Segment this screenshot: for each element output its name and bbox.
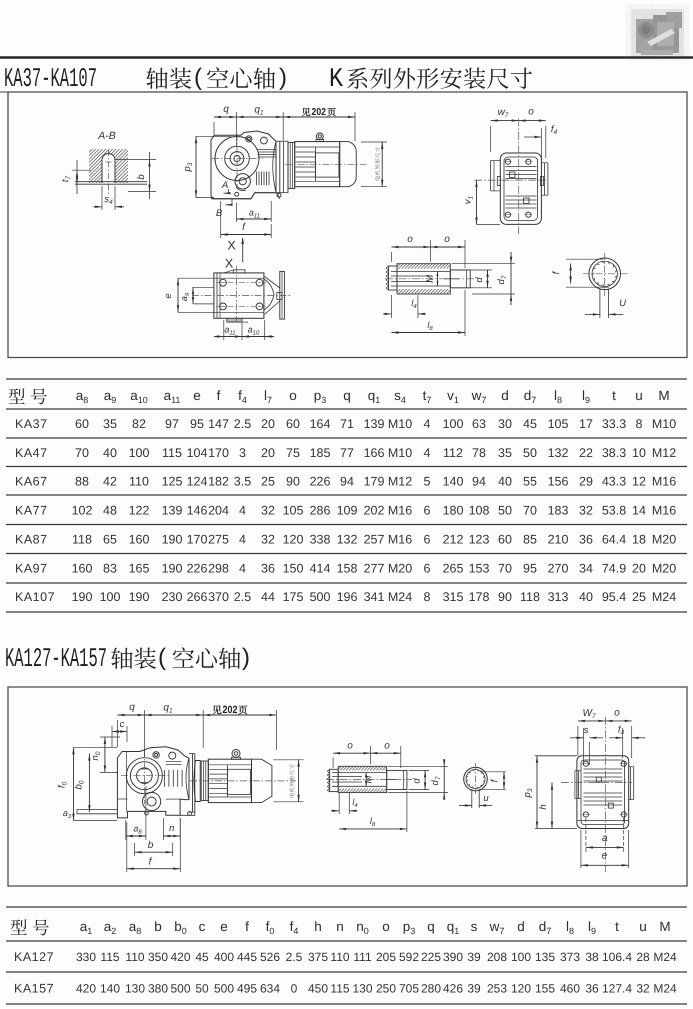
svg-text:88421101251241823.525902269417: 88421101251241823.5259022694179M12514094… xyxy=(75,475,676,489)
svg-text:d: d xyxy=(474,277,485,283)
svg-text:p3: p3 xyxy=(314,388,327,405)
svg-text:t: t xyxy=(615,919,619,934)
svg-text:): ) xyxy=(242,644,250,671)
svg-text:d: d xyxy=(517,919,525,934)
svg-text:f: f xyxy=(245,919,249,934)
svg-text:f4: f4 xyxy=(290,919,299,936)
svg-text:o: o xyxy=(347,741,353,752)
svg-text:n0: n0 xyxy=(356,919,369,936)
svg-text:M: M xyxy=(364,775,375,783)
svg-text:t7: t7 xyxy=(423,388,432,405)
svg-text:q: q xyxy=(223,104,229,115)
svg-text:a2: a2 xyxy=(104,919,117,936)
svg-text:118651601901702754321203381322: 11865160190170275432120338132257M1662121… xyxy=(72,532,676,546)
svg-text:p3: p3 xyxy=(403,919,416,936)
svg-text:KA77: KA77 xyxy=(15,504,48,518)
svg-text:l8: l8 xyxy=(554,388,562,405)
svg-text:a11: a11 xyxy=(224,325,235,337)
svg-text:o: o xyxy=(289,388,297,403)
svg-text:(: ( xyxy=(194,64,202,91)
svg-text:A-B: A-B xyxy=(97,130,116,142)
svg-text:KA87: KA87 xyxy=(15,532,48,546)
svg-text:A: A xyxy=(221,180,228,191)
svg-text:60358297951472.5206016471139M1: 60358297951472.5206016471139M10410063304… xyxy=(75,417,676,431)
svg-text:u: u xyxy=(635,388,643,403)
svg-text:K: K xyxy=(329,65,344,95)
svg-text:o: o xyxy=(382,919,390,934)
svg-text:l8: l8 xyxy=(370,816,376,828)
svg-text:w7: w7 xyxy=(489,919,505,936)
svg-text:f4: f4 xyxy=(551,124,558,136)
svg-text:KA127: KA127 xyxy=(14,950,54,964)
svg-text:a1: a1 xyxy=(80,919,93,936)
svg-text:u: u xyxy=(639,919,647,934)
svg-text:KA107: KA107 xyxy=(15,590,55,604)
svg-text:l4: l4 xyxy=(411,298,417,310)
svg-text:l8: l8 xyxy=(566,919,574,936)
svg-text:(: ( xyxy=(158,644,166,671)
svg-text:d: d xyxy=(412,778,423,784)
svg-text:KA67: KA67 xyxy=(15,475,48,489)
svg-text:l9: l9 xyxy=(588,919,596,936)
svg-text:KA37: KA37 xyxy=(15,417,48,431)
svg-text:d7: d7 xyxy=(524,388,537,405)
svg-text:q1: q1 xyxy=(254,105,264,117)
svg-text:M: M xyxy=(659,919,670,934)
svg-text:u: u xyxy=(483,793,489,804)
svg-text:KA157: KA157 xyxy=(14,982,54,996)
svg-text:102481221391462044321052861092: 10248122139146204432105286109202M1661801… xyxy=(72,504,677,518)
svg-text:a11: a11 xyxy=(249,208,260,220)
svg-text:X: X xyxy=(225,257,234,271)
svg-text:w7: w7 xyxy=(471,388,487,405)
svg-text:l8: l8 xyxy=(427,320,433,332)
svg-text:b: b xyxy=(154,919,162,934)
svg-text:q: q xyxy=(427,919,435,934)
svg-text:s4: s4 xyxy=(394,388,406,405)
svg-text:c: c xyxy=(199,919,206,934)
svg-text:v1: v1 xyxy=(447,388,459,405)
svg-text:U: U xyxy=(619,298,626,309)
svg-text:d7: d7 xyxy=(539,919,552,936)
svg-text:f4: f4 xyxy=(238,388,247,405)
svg-text:v1: v1 xyxy=(463,195,475,204)
svg-text:d: d xyxy=(501,388,509,403)
svg-text:M: M xyxy=(425,275,436,283)
svg-text:d7: d7 xyxy=(430,776,442,785)
svg-text:W7: W7 xyxy=(582,708,595,720)
svg-text:q: q xyxy=(343,388,351,403)
svg-text:o: o xyxy=(614,708,620,719)
svg-text:M: M xyxy=(658,388,669,403)
svg-text:a3: a3 xyxy=(63,808,72,820)
svg-text:f4: f4 xyxy=(618,725,625,737)
svg-text:d7: d7 xyxy=(496,275,508,284)
svg-text:o: o xyxy=(444,234,450,245)
svg-text:b0: b0 xyxy=(174,919,187,936)
svg-text:a: a xyxy=(602,833,608,844)
svg-text:a9: a9 xyxy=(104,388,117,405)
svg-text:n: n xyxy=(169,823,174,834)
svg-text:s: s xyxy=(471,919,478,934)
svg-text:a9: a9 xyxy=(179,292,191,301)
svg-text:s: s xyxy=(584,725,589,736)
svg-text:t: t xyxy=(612,388,616,403)
svg-text:n: n xyxy=(336,919,344,934)
svg-text:q1: q1 xyxy=(163,703,173,715)
svg-text:e: e xyxy=(163,293,174,298)
svg-text:f0: f0 xyxy=(57,781,69,788)
svg-text:f: f xyxy=(490,778,501,782)
svg-text:b0: b0 xyxy=(74,780,86,789)
svg-text:420140130380500505004956340450: 4201401303805005050049563404501151302507… xyxy=(76,982,677,996)
svg-text:): ) xyxy=(279,64,287,91)
svg-text:KA37-KA107: KA37-KA107 xyxy=(4,65,97,95)
svg-text:1901001902302663702.5441755001: 1901001902302663702.544175500196341M2483… xyxy=(72,590,677,604)
svg-text:l7: l7 xyxy=(264,388,272,405)
svg-text:l9: l9 xyxy=(582,388,590,405)
svg-text:n0: n0 xyxy=(90,751,102,760)
svg-text:c: c xyxy=(120,719,125,730)
svg-text:160831651902262984361504141582: 16083165190226298436150414158277M2062651… xyxy=(72,561,677,575)
svg-text:a8: a8 xyxy=(129,919,142,936)
svg-text:f: f xyxy=(551,270,562,274)
svg-text:KA47: KA47 xyxy=(15,446,48,460)
svg-text:b: b xyxy=(148,840,154,851)
svg-text:s4: s4 xyxy=(104,194,113,206)
svg-text:a10: a10 xyxy=(130,388,148,405)
svg-text:KA127-KA157: KA127-KA157 xyxy=(5,645,107,675)
svg-text:l4: l4 xyxy=(352,797,358,809)
svg-text:b: b xyxy=(136,174,147,179)
svg-text:o: o xyxy=(384,741,390,752)
svg-text:w7: w7 xyxy=(498,107,509,119)
svg-text:KA97: KA97 xyxy=(15,561,48,575)
svg-text:e: e xyxy=(602,851,608,862)
svg-text:202: 202 xyxy=(312,107,327,118)
svg-text:q1: q1 xyxy=(368,388,381,405)
svg-text:h: h xyxy=(538,804,549,809)
svg-text:X: X xyxy=(227,239,236,253)
svg-text:h: h xyxy=(314,919,322,934)
svg-text:a8: a8 xyxy=(76,388,89,405)
svg-text:e: e xyxy=(193,388,201,403)
svg-text:q1: q1 xyxy=(447,919,460,936)
svg-text:202: 202 xyxy=(223,704,238,716)
svg-text:70401001151041703207518577166M: 70401001151041703207518577166M1041127835… xyxy=(75,446,676,460)
svg-text:f: f xyxy=(149,857,153,868)
svg-text:o: o xyxy=(407,234,413,245)
svg-text:f0: f0 xyxy=(266,919,275,936)
svg-text:p3: p3 xyxy=(522,788,534,798)
svg-text:a11: a11 xyxy=(164,388,181,405)
svg-text:B: B xyxy=(216,208,223,219)
svg-text:q: q xyxy=(129,702,135,713)
svg-text:e: e xyxy=(220,919,228,934)
svg-text:f: f xyxy=(242,222,246,233)
svg-text:330115110350420454004455262.53: 330115110350420454004455262.537511011120… xyxy=(76,950,677,964)
svg-text:o: o xyxy=(528,107,534,118)
svg-text:a8: a8 xyxy=(133,824,142,836)
svg-text:p3: p3 xyxy=(182,162,194,172)
svg-text:t7: t7 xyxy=(60,175,72,182)
svg-text:f: f xyxy=(217,388,221,403)
svg-text:a10: a10 xyxy=(248,325,260,337)
